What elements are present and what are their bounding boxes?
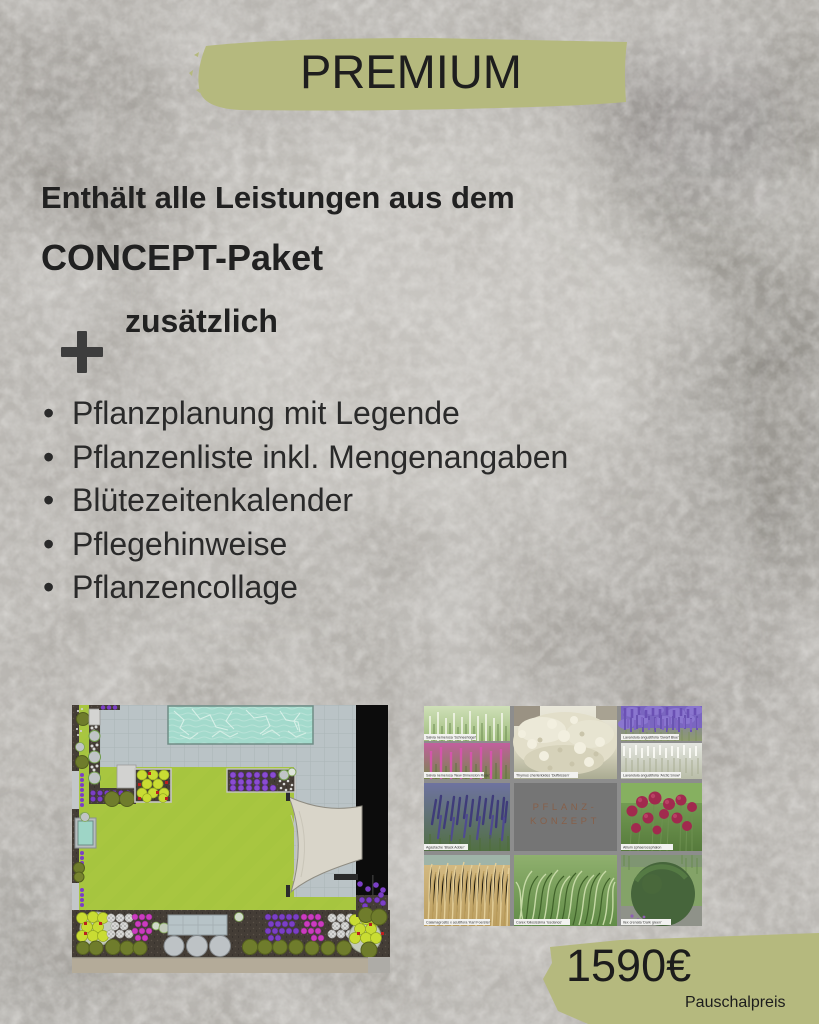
svg-text:Ilex crenata 'Dark green': Ilex crenata 'Dark green': [623, 921, 662, 925]
svg-text:Lavandula angustifolia 'Arctic: Lavandula angustifolia 'Arctic Snow': [623, 774, 680, 778]
svg-text:Salvia nemerosa 'Schneehügel': Salvia nemerosa 'Schneehügel': [426, 736, 476, 740]
svg-text:Thymus cherlerioides 'Duftkiss: Thymus cherlerioides 'Duftkissen': [516, 774, 570, 778]
svg-text:Calamagrostis x acutiflora 'Ka: Calamagrostis x acutiflora 'Karl Foerste…: [426, 921, 491, 925]
svg-text:Agastache 'Black Adder': Agastache 'Black Adder': [426, 846, 465, 850]
svg-text:KONZEPT: KONZEPT: [530, 816, 600, 827]
svg-text:Lavandula angustifolia 'Dwarf: Lavandula angustifolia 'Dwarf Blue': [623, 736, 679, 740]
svg-text:Carex foliosissima 'Icedance': Carex foliosissima 'Icedance': [516, 921, 562, 925]
svg-text:PFLANZ-: PFLANZ-: [533, 802, 598, 813]
svg-text:Allium sphaerocephalon: Allium sphaerocephalon: [623, 846, 661, 850]
svg-text:Salvia nemerosa 'New Dimension: Salvia nemerosa 'New Dimension Rose': [426, 774, 490, 778]
